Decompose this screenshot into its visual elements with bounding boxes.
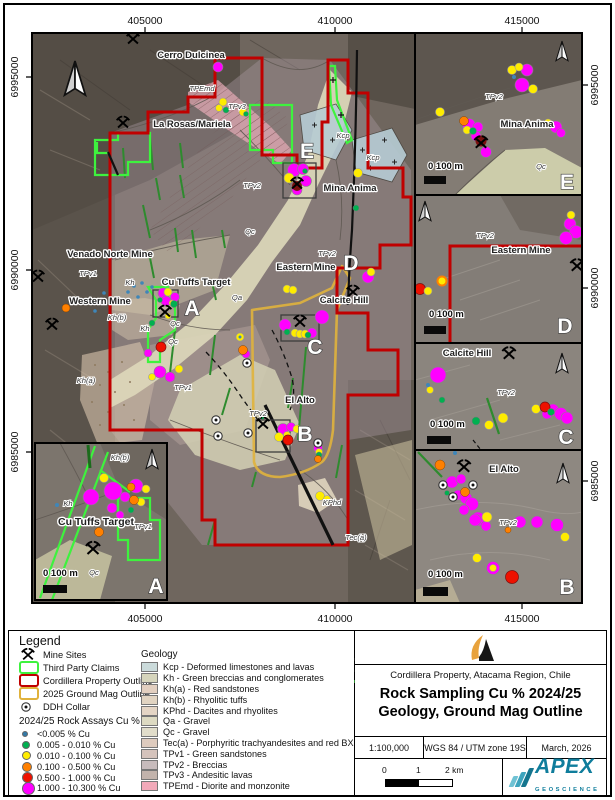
scale-bar: 0 1 2 km (355, 759, 502, 795)
geology-label: Kcp - Deformed limestones and lavas (163, 662, 314, 672)
assay-legend-list: <0.005 % Cu 0.005 - 0.010 % Cu 0.010 - 0… (19, 729, 141, 794)
apex-sub-wordmark: GEOSCIENCE (535, 787, 600, 793)
svg-text:0 100 m: 0 100 m (430, 419, 465, 430)
geology-legend-list: Kcp - Deformed limestones and lavas Kh -… (141, 662, 354, 792)
geology-swatch (141, 706, 158, 716)
legend-ddh-collar: DDH Collar (19, 700, 141, 713)
legend-label: Third Party Claims (43, 663, 119, 673)
svg-text:Qc: Qc (536, 162, 546, 171)
legend-label: 2025 Ground Mag Outline (43, 689, 150, 699)
label-cerro-dulcinea: Cerro Dulcinea (157, 50, 225, 61)
inset-a: Kh(b) Kh Cu Tuffs Target TPv1 Qc 0 100 m… (35, 443, 167, 600)
assay-legend-row: <0.005 % Cu (19, 729, 141, 740)
svg-text:C: C (307, 336, 322, 359)
svg-text:TPv2: TPv2 (249, 409, 268, 418)
map-figure: Cerro Dulcinea La Rosas/Mariela Mina Ani… (0, 0, 615, 628)
geology-swatch (141, 770, 158, 780)
svg-text:Qc: Qc (170, 319, 180, 328)
svg-text:Mina Anima: Mina Anima (501, 119, 555, 130)
geology-swatch (141, 662, 158, 672)
map-scale: 1:100,000 (355, 737, 424, 758)
geology-legend-row: TPEmd - Diorite and monzonite (141, 781, 354, 792)
svg-text:Kh: Kh (63, 499, 72, 508)
svg-text:Kh: Kh (125, 278, 134, 287)
svg-text:Calcite Hill: Calcite Hill (443, 348, 492, 359)
svg-text:E: E (560, 171, 574, 194)
legend-panel: Legend Mine Sites Third Party Claims Cor… (8, 630, 355, 796)
svg-text:TPv2: TPv2 (485, 92, 504, 101)
svg-text:Cu Tuffs Target: Cu Tuffs Target (58, 516, 135, 528)
geology-header: Geology (141, 649, 354, 660)
geology-swatch (141, 727, 158, 737)
svg-text:TPv1: TPv1 (79, 269, 97, 278)
assay-dot (22, 751, 31, 760)
apex-wordmark: APEX (535, 755, 594, 778)
geology-label: TPv1 - Green sandstones (163, 749, 267, 759)
geology-swatch (141, 738, 158, 748)
company-logo (355, 631, 606, 665)
geology-legend-row: Kh(b) - Rhyolitic tuffs (141, 694, 354, 705)
geology-swatch (141, 749, 158, 759)
geology-label: Tec(a) - Porphyritic trachyandesites and… (163, 738, 354, 748)
svg-text:TPv2: TPv2 (318, 249, 337, 258)
assay-label: <0.005 % Cu (37, 729, 90, 739)
svg-text:Kh(b): Kh(b) (111, 453, 130, 462)
property-swatch (19, 674, 39, 687)
geology-label: Qc - Gravel (163, 727, 210, 737)
inset-d: TPv2 Eastern Mine 0 100 m D (415, 195, 584, 343)
geology-legend-row: TPv1 - Green sandstones (141, 748, 354, 759)
assay-label: 0.010 - 0.100 % Cu (37, 751, 115, 761)
geology-label: Kh(a) - Red sandstones (163, 684, 259, 694)
svg-text:Kh(b): Kh(b) (108, 313, 127, 322)
svg-text:Qa: Qa (232, 293, 242, 302)
assay-legend-row: 0.010 - 0.100 % Cu (19, 751, 141, 762)
map-title: Rock Sampling Cu % 2024/25 Geology, Grou… (355, 681, 606, 736)
svg-text:Kcp: Kcp (366, 153, 379, 162)
svg-text:E: E (300, 140, 314, 163)
assay-legend-row: 0.500 - 1.000 % Cu (19, 772, 141, 783)
svg-text:TPv1: TPv1 (134, 522, 152, 531)
assay-label: 0.100 - 0.500 % Cu (37, 762, 115, 772)
svg-text:0 100 m: 0 100 m (428, 569, 463, 580)
svg-text:C: C (558, 426, 573, 449)
svg-text:A: A (184, 297, 199, 320)
svg-text:Kh(a): Kh(a) (77, 376, 96, 385)
geology-legend-row: KPhd - Dacites and rhyolites (141, 705, 354, 716)
label-la-rosas: La Rosas/Mariela (153, 119, 231, 130)
geology-swatch (141, 760, 158, 770)
assay-dot (22, 731, 28, 737)
svg-text:KPhd: KPhd (323, 498, 342, 507)
inset-c: Calcite Hill TPv2 0 100 m C (415, 343, 582, 450)
geology-label: TPv2 - Breccias (163, 760, 227, 770)
scale-bar-graphic (385, 779, 453, 787)
geology-swatch (141, 781, 158, 791)
geology-legend-row: Kh - Green breccias and conglomerates (141, 673, 354, 684)
legend-mine-sites: Mine Sites (19, 648, 141, 661)
svg-text:D: D (343, 252, 358, 275)
title-block: Cordillera Property, Atacama Region, Chi… (355, 630, 607, 796)
geology-legend-row: Qc - Gravel (141, 727, 354, 738)
svg-text:415000: 415000 (504, 15, 539, 27)
mine-sites-icon (19, 648, 43, 662)
label-western-mine: Western Mine (69, 296, 131, 307)
svg-text:Qc: Qc (245, 227, 255, 236)
geology-legend-row: Kcp - Deformed limestones and lavas (141, 662, 354, 673)
svg-text:6990000: 6990000 (9, 249, 21, 290)
svg-text:Eastern Mine: Eastern Mine (491, 245, 550, 256)
svg-text:0 100 m: 0 100 m (428, 161, 463, 172)
svg-text:TPv2: TPv2 (476, 231, 495, 240)
property-subtitle: Cordillera Property, Atacama Region, Chi… (355, 665, 606, 681)
geology-swatch (141, 716, 158, 726)
geology-label: TPv3 - Andesitic lavas (163, 770, 252, 780)
geology-swatch (141, 673, 158, 683)
svg-text:6995000: 6995000 (9, 56, 21, 97)
svg-text:0 100 m: 0 100 m (429, 309, 464, 320)
label-eastern-mine: Eastern Mine (276, 262, 335, 273)
svg-text:TPv2: TPv2 (497, 388, 516, 397)
legend-third-party-claims: Third Party Claims (19, 661, 141, 674)
assay-label: 0.500 - 1.000 % Cu (37, 773, 115, 783)
svg-text:A: A (148, 575, 163, 598)
inset-e: TPv2 Mina Anima Qc 0 100 m E (415, 33, 582, 195)
geology-label: KPhd - Dacites and rhyolites (163, 706, 278, 716)
label-calcite-hill: Calcite Hill (320, 295, 369, 306)
inset-b: El Alto TPv2 0 100 m B (415, 450, 582, 603)
legend-title: Legend (19, 634, 348, 648)
svg-text:TPv2: TPv2 (499, 518, 518, 527)
label-cu-tuffs: Cu Tuffs Target (162, 277, 232, 288)
svg-text:B: B (559, 576, 574, 599)
svg-text:Qc: Qc (168, 337, 178, 346)
svg-text:El Alto: El Alto (489, 464, 519, 475)
geology-label: Kh(b) - Rhyolitic tuffs (163, 695, 247, 705)
geology-legend-row: Qa - Gravel (141, 716, 354, 727)
geology-label: TPEmd - Diorite and monzonite (163, 781, 290, 791)
apex-slashes-icon (511, 768, 532, 787)
assay-dot (22, 782, 35, 795)
assay-label: 1.000 - 10.300 % Cu (37, 783, 120, 793)
ddh-collar-icon (19, 701, 43, 713)
svg-text:TPv1: TPv1 (174, 383, 192, 392)
geology-label: Qa - Gravel (163, 716, 210, 726)
legend-label: Cordillera Property Outline (43, 676, 153, 686)
svg-text:405000: 405000 (127, 613, 162, 625)
assays-header: 2024/25 Rock Assays Cu % (19, 716, 141, 727)
svg-text:6985000: 6985000 (9, 431, 21, 472)
assay-dot (22, 762, 32, 772)
map-datum: WGS 84 / UTM zone 19S (424, 737, 527, 758)
assay-legend-row: 0.005 - 0.010 % Cu (19, 740, 141, 751)
assay-label: 0.005 - 0.010 % Cu (37, 740, 115, 750)
svg-text:405000: 405000 (127, 15, 162, 27)
svg-text:6995000: 6995000 (589, 64, 601, 105)
label-el-alto: El Alto (285, 395, 315, 406)
geology-label: Kh - Green breccias and conglomerates (163, 673, 324, 683)
svg-text:410000: 410000 (317, 15, 352, 27)
legend-label: Mine Sites (43, 650, 86, 660)
geology-legend-row: Tec(a) - Porphyritic trachyandesites and… (141, 738, 354, 749)
legend-label: DDH Collar (43, 702, 90, 712)
svg-text:Kh: Kh (140, 324, 149, 333)
svg-text:B: B (297, 423, 312, 446)
geology-legend-row: TPv3 - Andesitic lavas (141, 770, 354, 781)
geology-swatch (141, 695, 158, 705)
svg-text:D: D (557, 315, 572, 338)
geology-swatch (141, 684, 158, 694)
svg-text:TPEmd: TPEmd (189, 84, 215, 93)
claims-swatch (19, 661, 39, 674)
legend-property-outline: Cordillera Property Outline (19, 674, 141, 687)
svg-text:TPv3: TPv3 (228, 102, 247, 111)
svg-text:6990000: 6990000 (589, 267, 601, 308)
mountain-logo-icon (465, 633, 497, 663)
assay-dot (22, 741, 30, 749)
svg-text:6985000: 6985000 (589, 460, 601, 501)
legend-ground-mag: 2025 Ground Mag Outline (19, 687, 141, 700)
apex-logo: APEX GEOSCIENCE (502, 759, 606, 795)
svg-text:TPv2: TPv2 (243, 181, 262, 190)
svg-text:0 100 m: 0 100 m (43, 568, 78, 579)
svg-text:415000: 415000 (504, 613, 539, 625)
geology-legend-row: Kh(a) - Red sandstones (141, 684, 354, 695)
svg-text:410000: 410000 (317, 613, 352, 625)
assay-legend-row: 0.100 - 0.500 % Cu (19, 761, 141, 772)
label-venado-norte: Venado Norte Mine (67, 249, 153, 260)
mag-swatch (19, 687, 39, 700)
label-mina-anima: Mina Anima (324, 183, 378, 194)
geology-legend-row: TPv2 - Breccias (141, 759, 354, 770)
svg-text:Qc: Qc (89, 568, 99, 577)
svg-text:Kcp: Kcp (336, 131, 349, 140)
assay-legend-row: 1.000 - 10.300 % Cu (19, 783, 141, 794)
svg-text:Tec(a): Tec(a) (345, 533, 367, 542)
